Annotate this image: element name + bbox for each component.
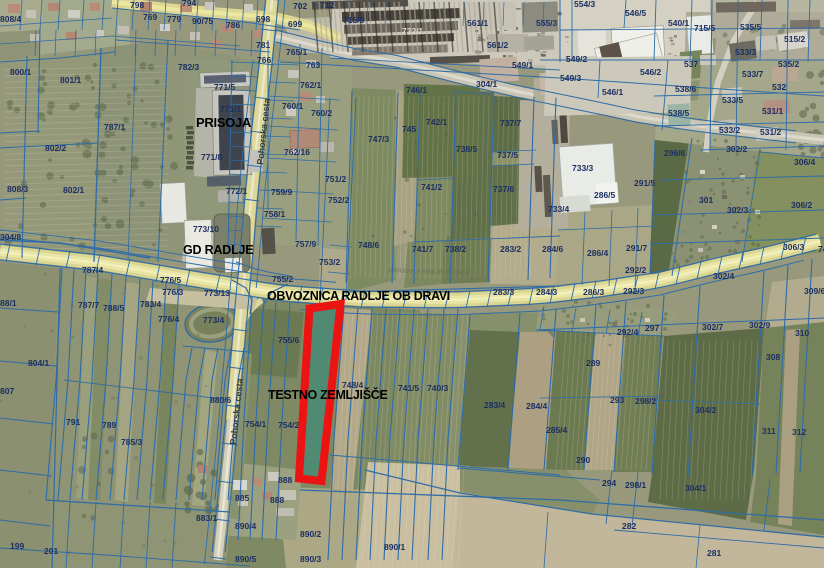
svg-text:890/3: 890/3 xyxy=(300,554,322,564)
svg-text:804/1: 804/1 xyxy=(28,358,50,368)
svg-text:788/5: 788/5 xyxy=(103,303,125,313)
svg-text:283/2: 283/2 xyxy=(500,244,522,254)
svg-text:291/7: 291/7 xyxy=(626,243,648,253)
svg-text:765/1: 765/1 xyxy=(286,47,308,57)
svg-text:GD RADLJE: GD RADLJE xyxy=(183,243,253,257)
svg-text:741/5: 741/5 xyxy=(398,383,420,393)
svg-text:540/1: 540/1 xyxy=(668,18,690,28)
svg-text:199: 199 xyxy=(10,541,24,551)
svg-text:304/2: 304/2 xyxy=(695,405,717,415)
svg-text:294: 294 xyxy=(602,478,616,488)
svg-text:741/7: 741/7 xyxy=(412,244,434,254)
svg-text:302/4: 302/4 xyxy=(713,271,735,281)
svg-text:286/4: 286/4 xyxy=(587,248,609,258)
svg-text:293: 293 xyxy=(610,395,624,405)
svg-text:781: 781 xyxy=(256,40,270,50)
svg-text:890/5: 890/5 xyxy=(235,554,257,564)
svg-text:773/4: 773/4 xyxy=(203,315,225,325)
svg-text:773/13: 773/13 xyxy=(204,288,230,298)
svg-text:302/9: 302/9 xyxy=(749,320,771,330)
svg-text:561/2: 561/2 xyxy=(487,40,509,50)
svg-text:546/2: 546/2 xyxy=(640,67,662,77)
svg-text:746: 746 xyxy=(818,244,824,254)
svg-text:535/2: 535/2 xyxy=(778,59,800,69)
svg-text:292/3: 292/3 xyxy=(623,286,645,296)
svg-text:751/2: 751/2 xyxy=(325,174,347,184)
svg-text:289: 289 xyxy=(586,358,600,368)
svg-text:304/1: 304/1 xyxy=(685,483,707,493)
svg-text:888: 888 xyxy=(270,495,284,505)
svg-text:802/2: 802/2 xyxy=(45,143,67,153)
svg-text:783/4: 783/4 xyxy=(140,299,162,309)
svg-text:787/1: 787/1 xyxy=(104,122,126,132)
svg-text:890/2: 890/2 xyxy=(300,529,322,539)
svg-text:282: 282 xyxy=(622,521,636,531)
svg-text:538/6: 538/6 xyxy=(675,84,697,94)
svg-text:776/5: 776/5 xyxy=(160,275,182,285)
svg-text:771/8: 771/8 xyxy=(201,152,223,162)
svg-text:772/1: 772/1 xyxy=(226,186,248,196)
svg-text:286/5: 286/5 xyxy=(594,190,616,200)
svg-text:546/5: 546/5 xyxy=(625,8,647,18)
svg-text:787/4: 787/4 xyxy=(82,265,104,275)
svg-text:753/2: 753/2 xyxy=(319,257,341,267)
svg-text:733/4: 733/4 xyxy=(548,204,570,214)
svg-text:88/1: 88/1 xyxy=(0,298,17,308)
svg-text:771/5: 771/5 xyxy=(214,82,236,92)
svg-text:737/5: 737/5 xyxy=(497,150,519,160)
svg-text:292/2: 292/2 xyxy=(625,265,647,275)
svg-text:779: 779 xyxy=(167,14,181,24)
svg-text:304/1: 304/1 xyxy=(476,79,498,89)
svg-text:745: 745 xyxy=(402,124,416,134)
svg-text:302/7: 302/7 xyxy=(702,322,724,332)
svg-text:712: 712 xyxy=(320,0,334,10)
svg-text:698: 698 xyxy=(256,14,270,24)
svg-text:OBVOZNICA RADLJE OB DRAVI: OBVOZNICA RADLJE OB DRAVI xyxy=(267,289,450,303)
svg-text:883/1: 883/1 xyxy=(196,513,218,523)
svg-text:741/2: 741/2 xyxy=(421,182,443,192)
svg-text:284/4: 284/4 xyxy=(526,401,548,411)
svg-text:555/3: 555/3 xyxy=(536,18,558,28)
svg-text:747/3: 747/3 xyxy=(368,134,390,144)
svg-text:773/10: 773/10 xyxy=(193,224,219,234)
svg-text:754/2: 754/2 xyxy=(278,420,300,430)
svg-text:746/1: 746/1 xyxy=(406,85,428,95)
svg-text:769: 769 xyxy=(143,12,157,22)
svg-text:515/2: 515/2 xyxy=(784,34,806,44)
svg-text:533/7: 533/7 xyxy=(742,69,764,79)
svg-text:298/2: 298/2 xyxy=(635,396,657,406)
svg-text:533/3: 533/3 xyxy=(735,47,757,57)
svg-text:776/4: 776/4 xyxy=(158,314,180,324)
svg-text:755/6: 755/6 xyxy=(278,335,300,345)
svg-text:715/5: 715/5 xyxy=(694,23,716,33)
svg-text:740/3: 740/3 xyxy=(427,383,449,393)
svg-text:763: 763 xyxy=(306,60,320,70)
svg-text:802/1: 802/1 xyxy=(63,185,85,195)
svg-text:284/6: 284/6 xyxy=(542,244,564,254)
svg-text:785/3: 785/3 xyxy=(121,437,143,447)
svg-text:312: 312 xyxy=(792,427,806,437)
svg-text:546/1: 546/1 xyxy=(602,87,624,97)
svg-text:306/2: 306/2 xyxy=(791,200,813,210)
svg-text:742/1: 742/1 xyxy=(426,117,448,127)
svg-text:702: 702 xyxy=(293,1,307,11)
svg-text:766: 766 xyxy=(257,55,271,65)
svg-text:298/1: 298/1 xyxy=(625,480,647,490)
svg-text:760/1: 760/1 xyxy=(282,101,304,111)
svg-text:535/5: 535/5 xyxy=(740,22,762,32)
svg-text:284/3: 284/3 xyxy=(536,287,558,297)
svg-text:309/6: 309/6 xyxy=(804,286,824,296)
svg-text:715/5: 715/5 xyxy=(343,15,365,25)
svg-text:782/3: 782/3 xyxy=(178,62,200,72)
svg-text:301: 301 xyxy=(699,195,713,205)
svg-text:760/2: 760/2 xyxy=(311,108,333,118)
svg-text:748/6: 748/6 xyxy=(358,240,380,250)
svg-text:304/8: 304/8 xyxy=(0,232,22,242)
svg-text:880/6: 880/6 xyxy=(210,395,232,405)
svg-text:283/3: 283/3 xyxy=(493,287,515,297)
svg-text:291/5: 291/5 xyxy=(634,178,656,188)
svg-text:554/3: 554/3 xyxy=(574,0,596,9)
svg-text:PRISOJA: PRISOJA xyxy=(196,115,252,130)
svg-text:754/1: 754/1 xyxy=(245,419,267,429)
svg-text:532: 532 xyxy=(772,82,786,92)
svg-text:738/5: 738/5 xyxy=(456,144,478,154)
svg-text:762/1: 762/1 xyxy=(300,80,322,90)
svg-text:771/1: 771/1 xyxy=(220,104,242,114)
svg-text:533/5: 533/5 xyxy=(722,95,744,105)
svg-text:292/4: 292/4 xyxy=(617,327,639,337)
svg-text:537: 537 xyxy=(684,59,698,69)
svg-text:800/1: 800/1 xyxy=(10,67,32,77)
svg-text:755/2: 755/2 xyxy=(272,274,294,284)
svg-text:758/1: 758/1 xyxy=(264,209,286,219)
svg-text:808/4: 808/4 xyxy=(0,14,22,24)
svg-text:890/1: 890/1 xyxy=(384,542,406,552)
svg-text:296/6: 296/6 xyxy=(664,148,686,158)
svg-text:290: 290 xyxy=(576,455,590,465)
svg-text:306/4: 306/4 xyxy=(794,157,816,167)
svg-text:549/3: 549/3 xyxy=(560,73,582,83)
svg-text:733/3: 733/3 xyxy=(572,163,594,173)
svg-text:531/2: 531/2 xyxy=(760,127,782,137)
svg-text:310: 310 xyxy=(795,328,809,338)
svg-text:699: 699 xyxy=(288,19,302,29)
svg-text:798: 798 xyxy=(130,0,144,10)
svg-text:732/1: 732/1 xyxy=(402,26,424,36)
svg-text:533/2: 533/2 xyxy=(719,125,741,135)
svg-text:531/1: 531/1 xyxy=(762,106,784,116)
svg-text:549/1: 549/1 xyxy=(512,60,534,70)
svg-text:90/75: 90/75 xyxy=(192,16,214,26)
svg-text:549/2: 549/2 xyxy=(566,54,588,64)
svg-text:791: 791 xyxy=(66,417,80,427)
svg-text:786: 786 xyxy=(226,20,240,30)
svg-text:759/9: 759/9 xyxy=(271,187,293,197)
svg-text:302/2: 302/2 xyxy=(726,144,748,154)
svg-text:737/6: 737/6 xyxy=(493,184,515,194)
svg-text:306/3: 306/3 xyxy=(783,242,805,252)
svg-text:311: 311 xyxy=(762,426,776,436)
svg-text:737/7: 737/7 xyxy=(500,118,522,128)
svg-text:762/16: 762/16 xyxy=(284,147,310,157)
svg-text:888: 888 xyxy=(278,475,292,485)
svg-text:285/4: 285/4 xyxy=(546,425,568,435)
svg-text:283/4: 283/4 xyxy=(484,400,506,410)
svg-text:808/3: 808/3 xyxy=(7,184,29,194)
svg-text:308: 308 xyxy=(766,352,780,362)
svg-text:297: 297 xyxy=(645,323,659,333)
svg-text:561/1: 561/1 xyxy=(467,18,489,28)
svg-text:757/9: 757/9 xyxy=(295,239,317,249)
svg-text:794: 794 xyxy=(182,0,196,8)
svg-text:201: 201 xyxy=(44,546,58,556)
svg-text:890/4: 890/4 xyxy=(235,521,257,531)
svg-text:801/1: 801/1 xyxy=(60,75,82,85)
svg-text:281: 281 xyxy=(707,548,721,558)
svg-text:789: 789 xyxy=(102,420,116,430)
svg-text:885: 885 xyxy=(235,493,249,503)
svg-text:752/2: 752/2 xyxy=(328,195,350,205)
svg-text:807: 807 xyxy=(0,386,14,396)
svg-text:776/3: 776/3 xyxy=(162,287,184,297)
svg-text:302/3: 302/3 xyxy=(727,205,749,215)
svg-text:738/2: 738/2 xyxy=(445,244,467,254)
svg-text:787/7: 787/7 xyxy=(78,300,100,310)
svg-text:TESTNO ZEMLJIŠČE: TESTNO ZEMLJIŠČE xyxy=(268,387,388,402)
svg-text:538/5: 538/5 xyxy=(668,108,690,118)
svg-text:286/3: 286/3 xyxy=(583,287,605,297)
